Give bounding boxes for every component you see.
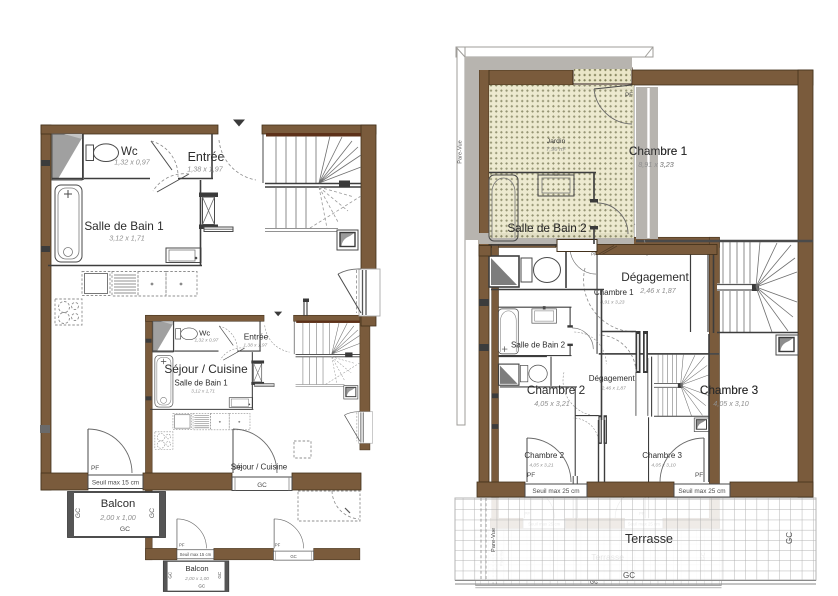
svg-text:Salle de Bain 2: Salle de Bain 2: [507, 221, 586, 235]
svg-text:Chambre 3: Chambre 3: [700, 383, 759, 397]
svg-text:Jardin: Jardin: [547, 138, 566, 145]
svg-text:Chambre 1: Chambre 1: [629, 144, 687, 158]
svg-text:Séjour / Cuisine: Séjour / Cuisine: [231, 463, 288, 472]
svg-text:7,96 m²: 7,96 m²: [546, 147, 567, 153]
svg-text:Pare-Vue: Pare-Vue: [458, 140, 464, 163]
svg-text:8,91 x 3,23: 8,91 x 3,23: [638, 160, 674, 169]
svg-text:Séjour / Cuisine: Séjour / Cuisine: [164, 362, 248, 376]
svg-text:PF: PF: [625, 92, 633, 99]
